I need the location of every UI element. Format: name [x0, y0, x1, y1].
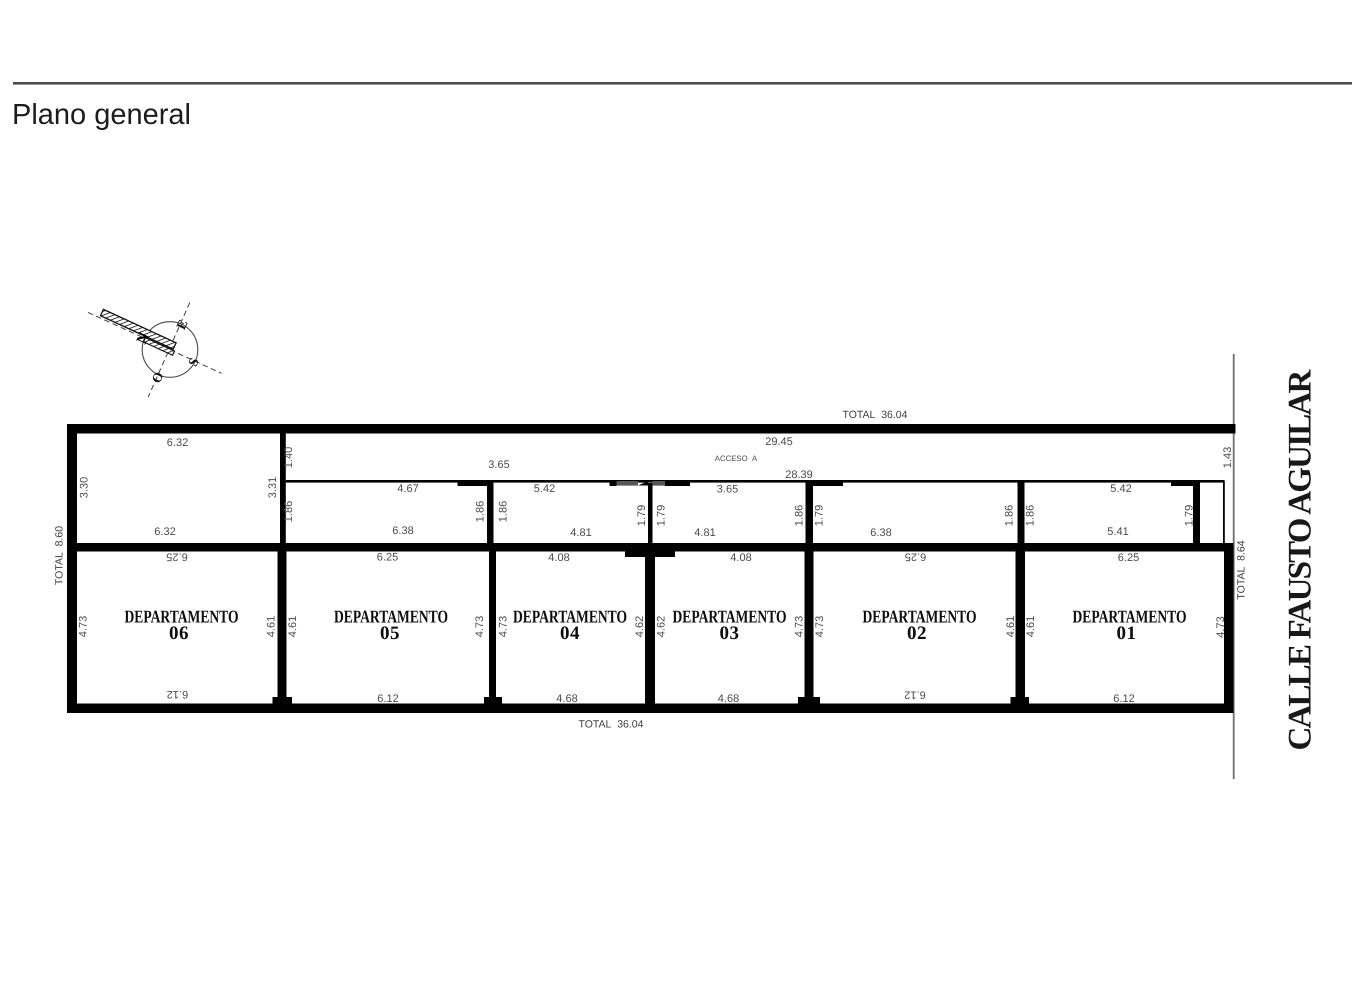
svg-text:4.73: 4.73	[1215, 616, 1227, 637]
svg-text:6.25: 6.25	[905, 551, 926, 563]
svg-text:4.61: 4.61	[266, 616, 278, 637]
svg-text:3.65: 3.65	[488, 459, 509, 471]
svg-text:TOTAL 36.04: TOTAL 36.04	[579, 719, 644, 731]
svg-text:29.45: 29.45	[765, 436, 793, 448]
svg-text:6.32: 6.32	[167, 437, 188, 449]
svg-text:4.61: 4.61	[1025, 616, 1037, 637]
svg-text:1.79: 1.79	[814, 505, 826, 526]
svg-text:28.39: 28.39	[785, 469, 813, 481]
svg-text:TOTAL 8.64: TOTAL 8.64	[1236, 540, 1248, 599]
svg-text:ACCESO A: ACCESO A	[715, 454, 758, 463]
svg-text:1.86: 1.86	[475, 501, 487, 522]
svg-text:6.12: 6.12	[377, 693, 398, 705]
svg-text:4.08: 4.08	[548, 552, 569, 564]
svg-text:4.68: 4.68	[718, 693, 739, 705]
svg-text:6.25: 6.25	[1118, 552, 1139, 564]
svg-text:6.12: 6.12	[1113, 693, 1134, 705]
svg-text:4.81: 4.81	[570, 527, 591, 539]
svg-text:6.12: 6.12	[904, 689, 925, 701]
svg-text:01: 01	[1117, 623, 1137, 644]
svg-text:1.40: 1.40	[283, 447, 295, 468]
svg-text:3.65: 3.65	[717, 484, 738, 496]
svg-text:5.42: 5.42	[1110, 483, 1131, 495]
svg-text:1.86: 1.86	[794, 505, 806, 526]
svg-text:6.38: 6.38	[870, 527, 891, 539]
svg-text:4.73: 4.73	[498, 616, 510, 637]
svg-text:1.86: 1.86	[283, 501, 295, 522]
svg-text:4.81: 4.81	[694, 527, 715, 539]
svg-text:6.12: 6.12	[167, 688, 188, 700]
svg-text:4.08: 4.08	[730, 552, 751, 564]
svg-text:6.25: 6.25	[166, 551, 187, 563]
svg-text:4.68: 4.68	[556, 693, 577, 705]
svg-text:05: 05	[380, 623, 400, 644]
svg-text:4.73: 4.73	[814, 616, 826, 637]
svg-text:CALLE FAUSTO AGUILAR: CALLE FAUSTO AGUILAR	[1283, 369, 1319, 751]
svg-text:03: 03	[720, 623, 740, 644]
svg-text:6.32: 6.32	[154, 526, 175, 538]
svg-text:4.73: 4.73	[78, 616, 90, 637]
svg-text:1.86: 1.86	[1025, 505, 1037, 526]
svg-text:04: 04	[560, 623, 580, 644]
svg-text:02: 02	[907, 623, 927, 644]
svg-text:4.61: 4.61	[1005, 616, 1017, 637]
svg-text:4.62: 4.62	[634, 616, 646, 637]
svg-text:1.79: 1.79	[636, 505, 648, 526]
svg-text:3.31: 3.31	[267, 477, 279, 498]
svg-text:3.30: 3.30	[79, 477, 91, 498]
svg-text:1.43: 1.43	[1222, 447, 1234, 468]
svg-text:1.79: 1.79	[1184, 505, 1196, 526]
svg-text:1.86: 1.86	[1004, 505, 1016, 526]
svg-text:4.67: 4.67	[397, 483, 418, 495]
svg-text:Plano general: Plano general	[12, 99, 191, 131]
svg-text:5.42: 5.42	[534, 483, 555, 495]
svg-text:6.25: 6.25	[377, 552, 398, 564]
svg-text:6.38: 6.38	[392, 525, 413, 537]
svg-text:4.62: 4.62	[656, 616, 668, 637]
svg-text:4.61: 4.61	[287, 616, 299, 637]
svg-text:TOTAL 36.04: TOTAL 36.04	[843, 409, 908, 421]
svg-text:1.79: 1.79	[656, 505, 668, 526]
svg-text:4.73: 4.73	[794, 616, 806, 637]
svg-text:TOTAL 8.60: TOTAL 8.60	[54, 526, 66, 585]
svg-text:4.73: 4.73	[474, 616, 486, 637]
svg-text:06: 06	[169, 623, 189, 644]
svg-text:5.41: 5.41	[1107, 526, 1128, 538]
svg-text:1.86: 1.86	[498, 501, 510, 522]
